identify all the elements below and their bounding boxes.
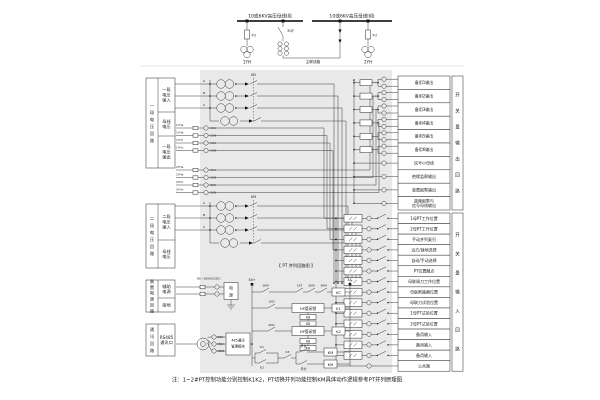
input-label: 备用输入 bbox=[416, 331, 432, 337]
input-label: 2母PT工作位置 bbox=[410, 225, 437, 231]
fuse-symbol bbox=[193, 176, 198, 179]
phase-label: C bbox=[203, 103, 205, 107]
input-row: 手动并列复归 bbox=[335, 234, 450, 245]
contact-label: K1 bbox=[260, 345, 264, 349]
contact-label: K3 bbox=[286, 350, 290, 354]
pt-1yh-symbol bbox=[244, 51, 250, 57]
coil-label: KC bbox=[336, 290, 341, 295]
power-fuse-symbol bbox=[200, 292, 205, 295]
input-side-label-char: 开 bbox=[455, 233, 460, 239]
relay-coil-box bbox=[360, 80, 372, 86]
hp-block-label: HP管闭锁 bbox=[300, 306, 317, 311]
coil-label: K2 bbox=[336, 329, 341, 334]
contact-label: 1KT bbox=[297, 284, 303, 288]
input-row: 2母PT试验位置 bbox=[335, 319, 450, 330]
stub-label: 2YHn bbox=[176, 188, 184, 192]
switch-input-section: 1母PT工作位置2母PT工作位置手动并列复归远方/就地选择自动/手动选择PT位置… bbox=[335, 213, 463, 371]
fuse-2-symbol bbox=[366, 30, 371, 39]
panel-row-label: 电源 bbox=[162, 288, 171, 295]
junction-dot bbox=[209, 229, 211, 231]
input-row: 远方/就地选择 bbox=[335, 245, 450, 256]
fuse-1-label: FU bbox=[252, 34, 257, 38]
stub-label: 1YHa bbox=[176, 123, 184, 127]
relay-coil-box bbox=[360, 107, 372, 113]
pt-1yh-label: 1YH bbox=[243, 60, 251, 65]
panel-row-label: 电压 bbox=[162, 253, 170, 260]
power-range-label: 85~265VAC/DC bbox=[197, 277, 220, 281]
input-label: 1母PT工作位置 bbox=[410, 215, 437, 221]
stub-label: 2YHc bbox=[176, 180, 184, 184]
junction-dot bbox=[341, 282, 343, 284]
input-row: 母联断路器位置 bbox=[335, 287, 450, 298]
junction-dot bbox=[209, 83, 211, 85]
tie-arrow bbox=[338, 30, 341, 34]
input-label: 公共端 bbox=[418, 362, 430, 368]
panel-row-label: 输出 bbox=[162, 154, 170, 161]
stub-label: 1YHc bbox=[176, 138, 184, 142]
rail-minus-label: 5A- bbox=[347, 278, 352, 282]
tie-breaker: 3QF 主联线路 bbox=[278, 21, 342, 64]
pt-2yh-label: 2YH bbox=[364, 60, 372, 65]
panel-row-label: 接地 bbox=[162, 301, 171, 308]
input-row: 备用输入 bbox=[335, 340, 450, 351]
output-side-label-char: 回 bbox=[455, 173, 460, 179]
input-label: 母联刀试验位置 bbox=[410, 299, 438, 305]
bus-2-label: 10或6KV高压母线II段 bbox=[329, 13, 375, 20]
input-row: 母联刀试验位置 bbox=[335, 297, 450, 308]
phase-label: B bbox=[203, 91, 205, 95]
stub-label: 2YHa bbox=[176, 165, 184, 169]
fuse-symbol bbox=[193, 149, 198, 152]
output-label: 备用2输出 bbox=[415, 93, 434, 99]
opto-isolator-box bbox=[344, 309, 362, 317]
panel-row-label: 输入 bbox=[162, 224, 171, 231]
input-row: 备用输入 bbox=[335, 329, 450, 340]
output-label: 信号小母线 bbox=[414, 160, 434, 166]
junction-dot bbox=[353, 79, 355, 81]
panel-row-label: 输入 bbox=[162, 97, 171, 104]
opto-isolator-box bbox=[344, 214, 362, 222]
ladder-title: 【 PT 并列回路图 】 bbox=[277, 262, 315, 269]
input-label: 2母PT试验位置 bbox=[410, 320, 437, 326]
panel-side-label-char: 一 bbox=[150, 103, 154, 108]
link-contact-label: KM bbox=[251, 195, 256, 199]
bus-section-2: 10或6KV高压母线II段 bbox=[312, 13, 392, 23]
input-side-label-char: 回 bbox=[455, 328, 460, 334]
relay-coil-box bbox=[360, 133, 372, 139]
terminal-panel-p2: 二段电压回路二段电压输入母线电压 bbox=[146, 204, 175, 268]
pt-2yh-symbol bbox=[365, 51, 371, 57]
output-side-label-char: 关 bbox=[455, 108, 460, 115]
junction-dot bbox=[209, 205, 211, 207]
junction-dot bbox=[333, 282, 335, 284]
opto-isolator-box bbox=[344, 257, 362, 265]
output-side-label-char: 出 bbox=[455, 156, 460, 163]
opto-isolator-box bbox=[344, 352, 362, 360]
contact-label: 1KD bbox=[268, 300, 275, 304]
opto-isolator-box bbox=[344, 299, 362, 307]
fuse-symbol bbox=[193, 183, 198, 186]
contact-label: 2KM bbox=[308, 284, 315, 288]
input-label: 1母PT试验位置 bbox=[410, 310, 437, 316]
input-row: 1母PT试验位置 bbox=[335, 308, 450, 319]
sub-relay-label: KB bbox=[306, 339, 310, 343]
relay-coil-box bbox=[360, 120, 372, 126]
output-side-label-char: 开 bbox=[455, 93, 460, 99]
coil-label: KM bbox=[328, 362, 334, 367]
contact-label: 手合 bbox=[300, 343, 306, 348]
input-side-label-char: 路 bbox=[455, 346, 460, 353]
output-side-label-char: 量 bbox=[455, 124, 460, 131]
junction-dot bbox=[209, 95, 211, 97]
comm-module-label: 管理模块 bbox=[231, 344, 245, 349]
pt-2yh-symbol bbox=[362, 46, 368, 52]
stub-label: 1YHn bbox=[176, 146, 184, 150]
junction-dot bbox=[209, 217, 211, 219]
fuse-symbol bbox=[193, 191, 198, 194]
fuse-2-label: FU bbox=[373, 34, 378, 38]
phase-label: B bbox=[203, 213, 205, 217]
opto-isolator-box bbox=[344, 341, 362, 349]
input-row: 自动/手动选择 bbox=[335, 255, 450, 266]
input-row: 2母PT工作位置 bbox=[335, 224, 450, 235]
terminal-panel-p3: 装置电源回路辅助电源接地 bbox=[146, 278, 175, 314]
panel-row-label: 电压 bbox=[162, 123, 170, 130]
input-label: 远方/就地选择 bbox=[411, 246, 436, 252]
contact-label: 3KM bbox=[320, 284, 327, 288]
bus-1-label: 10或6KV高压母线I段 bbox=[248, 13, 292, 20]
junction-dot bbox=[337, 282, 339, 284]
fuse-symbol bbox=[193, 168, 198, 171]
opto-isolator-box bbox=[344, 331, 362, 339]
panel-side-label-char: 二 bbox=[150, 216, 154, 221]
contact-label: K2 bbox=[260, 366, 264, 370]
output-side-label-char: 路 bbox=[455, 188, 460, 195]
tie-arrow bbox=[338, 40, 341, 44]
input-side-label-char: 输 bbox=[455, 289, 460, 296]
contact-label: 手分 bbox=[300, 366, 306, 371]
output-label: 信号母线输出 bbox=[412, 202, 436, 208]
input-row: 1母PT工作位置 bbox=[335, 213, 450, 224]
opto-isolator-box bbox=[344, 267, 362, 275]
stub-label: 2YHb bbox=[176, 173, 184, 177]
fuse-symbol bbox=[193, 126, 198, 129]
output-label: 备用4输出 bbox=[415, 119, 434, 125]
terminal-panel-p1: 一段电压回路一段电压输入母线电压一段电压输出 bbox=[146, 78, 175, 168]
terminal-panel-p4: 通讯回路RS485通讯口 bbox=[146, 324, 175, 356]
input-row: 备用输入 bbox=[335, 350, 450, 361]
pt-1yh-symbol bbox=[247, 46, 253, 52]
pt-1yh-symbol bbox=[241, 46, 247, 52]
power-supply-label-char: 电 bbox=[229, 285, 233, 291]
panel-row-label: 通讯口 bbox=[160, 339, 173, 346]
input-label: PT位置触点 bbox=[414, 268, 435, 274]
sub-relay-label: KB bbox=[306, 322, 310, 326]
input-row: PT位置触点 bbox=[335, 266, 450, 277]
fuse-symbol bbox=[193, 141, 198, 144]
fuse-1-symbol bbox=[245, 30, 250, 39]
relay-coil-box bbox=[360, 93, 372, 99]
relay-coil-box bbox=[360, 147, 372, 153]
opto-isolator-box bbox=[344, 320, 362, 328]
pt1-drop: FU 1YH bbox=[241, 21, 257, 65]
phase-label: C bbox=[203, 225, 205, 229]
hp-block-label: HP管闭锁 bbox=[300, 329, 317, 334]
opto-isolator-box bbox=[344, 236, 362, 244]
input-label: 母联断路器位置 bbox=[410, 289, 438, 295]
comm-module-label: 485通讯 bbox=[231, 338, 245, 343]
input-label: 手动并列复归 bbox=[412, 236, 436, 242]
output-label: 装置报警输出 bbox=[412, 186, 436, 192]
contact-label: 2KD bbox=[268, 323, 275, 327]
input-side-label-char: 关 bbox=[455, 251, 460, 258]
input-label: 备用输入 bbox=[416, 352, 432, 358]
opto-isolator-box bbox=[344, 225, 362, 233]
output-side-label-char: 输 bbox=[455, 140, 460, 147]
power-supply-label-char: 源 bbox=[229, 292, 233, 298]
opto-isolator-box bbox=[344, 246, 362, 254]
left-terminal-panels: 一段电压回路一段电压输入母线电压一段电压输出二段电压回路二段电压输入母线电压装置… bbox=[146, 78, 175, 356]
tie-label: 主联线路 bbox=[306, 59, 321, 64]
output-label: 备用1输出 bbox=[415, 79, 434, 85]
output-label: 绝缘监察输出 bbox=[412, 173, 436, 179]
contact-label: 1KM bbox=[262, 284, 269, 288]
pt2-drop: FU 2YH bbox=[362, 21, 378, 65]
pt-2yh-symbol bbox=[368, 46, 374, 52]
rail-plus-label: 5A+ bbox=[249, 278, 256, 282]
output-label: 备用3输出 bbox=[415, 106, 434, 112]
breaker-3qf-label: 3QF bbox=[287, 29, 294, 33]
coil-label: KM bbox=[328, 350, 334, 355]
stub-label: 1YHb bbox=[176, 131, 184, 135]
input-label: 母联闸刀工作位置 bbox=[408, 278, 440, 284]
sub-relay-label: KB bbox=[306, 315, 310, 319]
output-label: 备用6输出 bbox=[415, 146, 434, 152]
pt-parallel-schematic: 10或6KV高压母线I段 10或6KV高压母线II段 FU 1YH 3QF 主联… bbox=[0, 0, 600, 400]
fuse-symbol bbox=[193, 134, 198, 137]
link-contact-label: KD bbox=[251, 73, 256, 77]
output-label: 备用5输出 bbox=[415, 133, 434, 139]
coil-label: K1 bbox=[336, 306, 341, 311]
input-label: 自动/手动选择 bbox=[411, 257, 436, 263]
bottom-note: 注：1~2#PT控制功能分别控制K1K2，PT切换并列功能控制KM具体动作逻辑参… bbox=[172, 376, 402, 384]
breaker-3qf-contact bbox=[278, 27, 283, 36]
input-label: 备用输入 bbox=[416, 341, 432, 347]
power-fuse-symbol bbox=[200, 285, 205, 288]
input-side-label-char: 量 bbox=[455, 270, 460, 277]
junction-dot bbox=[209, 107, 211, 109]
input-side-label-char: 入 bbox=[455, 310, 460, 315]
